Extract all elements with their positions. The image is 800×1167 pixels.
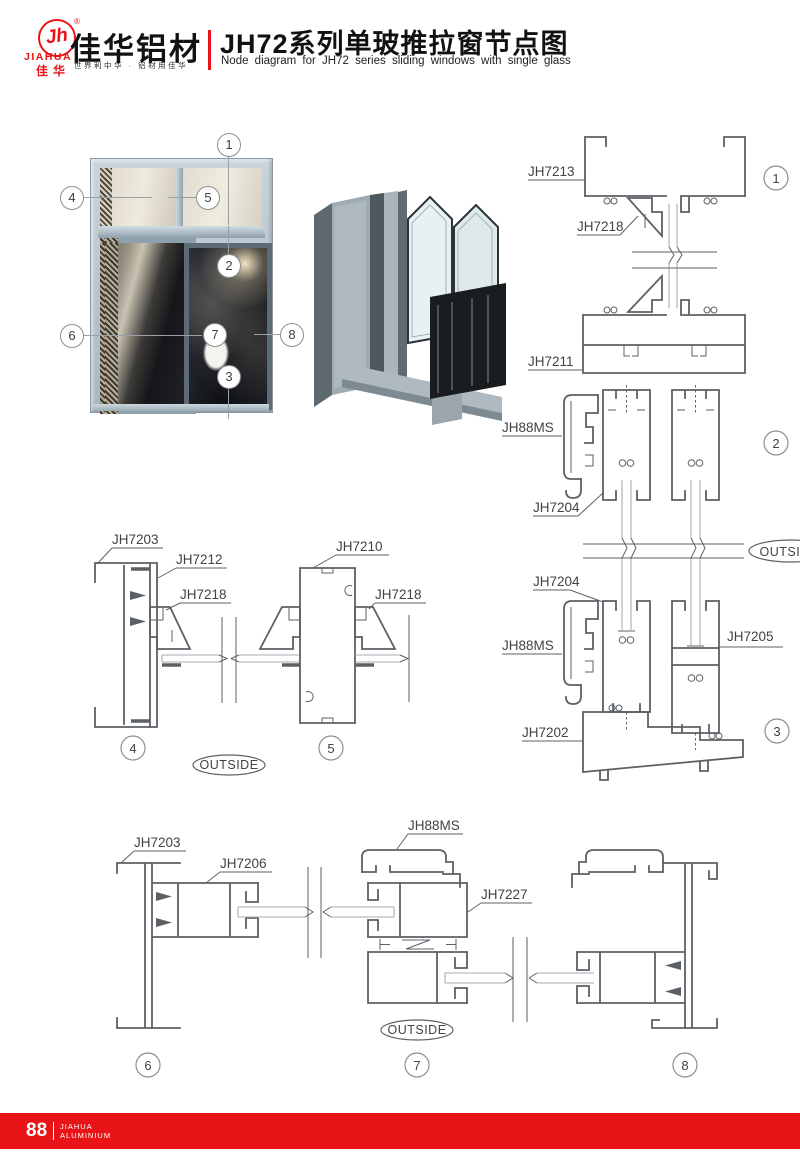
- window-sill: [94, 404, 269, 411]
- footer-divider: [53, 1122, 54, 1140]
- node7-glass: [445, 937, 594, 1022]
- node6-glass: [238, 867, 394, 958]
- outside-badge-bottom: OUTSIDE: [387, 1023, 446, 1037]
- page-footer: 88 JIAHUA ALUMINIUM: [0, 1113, 800, 1149]
- node2-sash-boxes: [603, 385, 719, 500]
- label-jh7227: JH7227: [481, 887, 528, 902]
- callout-2: 2: [217, 254, 241, 278]
- callout-1: 1: [217, 133, 241, 157]
- label-jh7211: JH7211: [528, 354, 574, 369]
- node6-jamb-profile: [117, 863, 258, 1028]
- node4-jamb-profile: [95, 563, 190, 727]
- callout-line-4: [82, 197, 152, 198]
- node-badge-6: 6: [144, 1058, 151, 1073]
- label-jh7218-n5: JH7218: [375, 587, 422, 602]
- window-lattice-bottom: [100, 238, 118, 414]
- callout-line-8: [254, 334, 280, 335]
- node7-interlock-profile: [368, 883, 467, 1003]
- label-jh88ms-n3: JH88MS: [502, 638, 554, 653]
- footer-brand-line1: JIAHUA: [60, 1122, 111, 1131]
- label-jh7218-n4: JH7218: [180, 587, 227, 602]
- callout-line-2: [228, 226, 229, 254]
- node5-glass: [355, 615, 409, 702]
- label-jh7202: JH7202: [522, 725, 569, 740]
- logo-text-cn: 佳华: [36, 62, 70, 79]
- node2-hook-cover-profile: [564, 395, 598, 498]
- node-drawing-1-2-3: JH7213 JH7218 JH7211 JH88MS JH7204 JH720…: [500, 125, 800, 800]
- callout-4: 4: [60, 186, 84, 210]
- label-jh7213: JH7213: [528, 164, 575, 179]
- brand-tagline: 世界利中华 · 铝材用佳华: [74, 60, 188, 71]
- label-jh7205: JH7205: [727, 629, 774, 644]
- footer-brand-line2: ALUMINIUM: [60, 1131, 111, 1140]
- node7-hook-cover: [362, 850, 460, 887]
- label-jh7204-n2: JH7204: [533, 500, 580, 515]
- node-badge-4: 4: [129, 741, 136, 756]
- callout-line-3: [228, 387, 229, 419]
- label-jh7203-n6: JH7203: [134, 835, 181, 850]
- label-jh7204-n3: JH7204: [533, 574, 580, 589]
- callout-5: 5: [196, 186, 220, 210]
- node8-jamb-profile: [577, 863, 717, 1028]
- node-badge-5: 5: [327, 741, 334, 756]
- label-jh7218-n1: JH7218: [577, 219, 624, 234]
- node2-lower-frame-profile: [583, 276, 745, 373]
- label-jh88ms-n7: JH88MS: [408, 818, 460, 833]
- label-jh7206: JH7206: [220, 856, 267, 871]
- outside-badge-right: OUTSIDE: [759, 545, 800, 559]
- callout-6: 6: [60, 324, 84, 348]
- node-badge-2: 2: [772, 436, 779, 451]
- outside-badge-mid: OUTSIDE: [199, 758, 258, 772]
- node-drawing-4-5: JH7203 JH7212 JH7218 JH7210 JH7218 4 5 O…: [60, 528, 480, 790]
- footer-brand: JIAHUA ALUMINIUM: [60, 1122, 111, 1140]
- label-jh7210: JH7210: [336, 539, 383, 554]
- node8-hook-cover: [572, 850, 663, 887]
- header-divider: [208, 30, 211, 70]
- callout-line-1: [228, 155, 229, 225]
- label-jh88ms-n2: JH88MS: [502, 420, 554, 435]
- callout-line-5: [168, 197, 196, 198]
- callout-8: 8: [280, 323, 304, 347]
- node-badge-1: 1: [772, 171, 779, 186]
- catalog-page: Jh ® JIAHUA 佳华 佳华铝材 世界利中华 · 铝材用佳华 JH72系列…: [0, 0, 800, 1167]
- callout-7: 7: [203, 323, 227, 347]
- page-subtitle: Node diagram for JH72 series sliding win…: [221, 55, 571, 67]
- page-number: 88: [26, 1120, 47, 1142]
- node-badge-8: 8: [681, 1058, 688, 1073]
- window-transom: [98, 226, 265, 238]
- callout-line-6: [82, 335, 202, 336]
- node-badge-3: 3: [773, 724, 780, 739]
- node4-glass: [162, 617, 300, 703]
- node-drawing-6-7-8: JH7203 JH7206 JH88MS JH7227 6 7 8 OUTSID…: [60, 815, 760, 1080]
- label-jh7212: JH7212: [176, 552, 223, 567]
- profile-3d-render: [312, 185, 517, 427]
- callout-3: 3: [217, 365, 241, 389]
- label-jh7203-n4: JH7203: [112, 532, 159, 547]
- node-badge-7: 7: [413, 1058, 420, 1073]
